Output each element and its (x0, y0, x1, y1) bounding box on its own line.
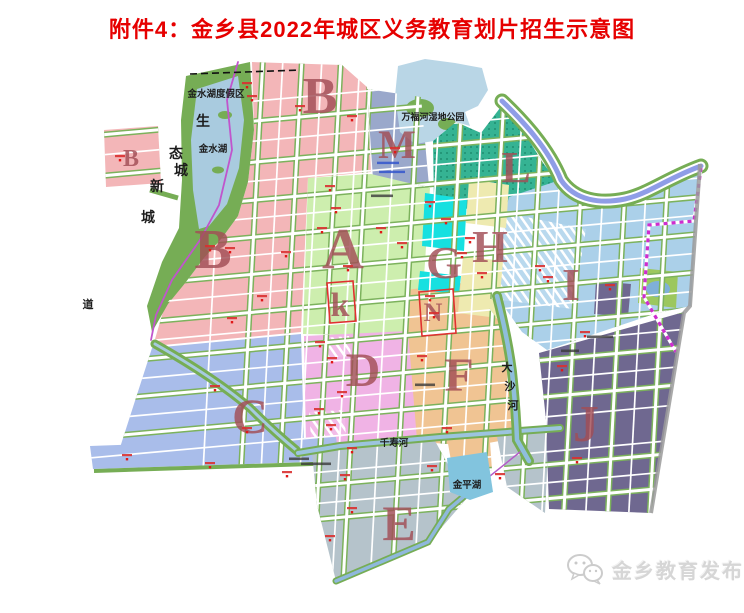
zone-letter-b-left: B (194, 219, 231, 281)
school-dot-mark (446, 431, 448, 433)
school-dot-mark (209, 249, 211, 251)
school-name-mark (441, 218, 451, 220)
school-name-mark (457, 252, 467, 254)
school-dot-mark (429, 299, 431, 301)
school-dot-mark (609, 288, 611, 290)
school-name-mark (257, 295, 267, 297)
school-dot-mark (331, 361, 333, 363)
school-dot-mark (126, 458, 128, 460)
school-dot-mark (431, 469, 433, 471)
school-dot-mark (335, 211, 337, 213)
school-dot-mark (401, 246, 403, 248)
school-dot-mark (547, 280, 549, 282)
school-dot-mark (347, 269, 349, 271)
school-dot-mark (318, 412, 320, 414)
school-dot-mark (321, 231, 323, 233)
school-dot-mark (344, 478, 346, 480)
school-dot-mark (351, 119, 353, 121)
school-dot-mark (261, 299, 263, 301)
school-dot-mark (584, 335, 586, 337)
school-name-mark (205, 245, 215, 247)
school-dot-mark (341, 395, 343, 397)
school-name-mark (205, 462, 215, 464)
school-dot-mark (329, 539, 331, 541)
zone-letter-e: E (382, 495, 415, 551)
school-name-mark (465, 237, 475, 239)
school-name-mark (247, 95, 257, 97)
label-dasha-1: 大 (502, 360, 513, 374)
school-name-mark (347, 507, 357, 509)
blue-label-mark (377, 162, 399, 164)
school-dot-mark (285, 255, 287, 257)
school-name-mark (242, 427, 252, 429)
zoning-map: B M L B B A H G k N I D F C J E 金水湖度假区 金… (0, 0, 744, 613)
school-name-mark (340, 474, 350, 476)
school-name-mark (495, 473, 505, 475)
school-name-mark (225, 247, 235, 249)
label-resort: 金水湖度假区 (186, 88, 245, 100)
school-name-mark (281, 251, 291, 253)
black-label-mark (289, 458, 309, 461)
zone-letter-k: k (331, 287, 350, 324)
islet (218, 111, 232, 119)
school-name-mark (314, 408, 324, 410)
school-dot-mark (461, 256, 463, 258)
school-name-mark (427, 465, 437, 467)
school-name-mark (325, 185, 335, 187)
black-label-mark (301, 463, 331, 466)
school-dot-mark (209, 466, 211, 468)
school-name-mark (326, 424, 336, 426)
black-label-mark (587, 336, 613, 339)
zone-letter-l: L (501, 143, 530, 192)
school-dot-mark (429, 205, 431, 207)
school-dot-mark (319, 345, 321, 347)
school-dot-mark (286, 475, 288, 477)
school-name-mark (477, 272, 487, 274)
zone-letter-h: H (472, 221, 508, 272)
label-river-qianshou: 千寿河 (380, 437, 409, 449)
school-name-mark (122, 454, 132, 456)
page: B M L B B A H G k N I D F C J E 金水湖度假区 金… (0, 0, 744, 613)
school-dot-mark (351, 451, 353, 453)
school-dot-mark (561, 369, 563, 371)
school-dot-mark (246, 431, 248, 433)
school-dot-mark (445, 222, 447, 224)
zone-letter-f: F (444, 349, 473, 402)
watermark: 金乡教育发布 (566, 552, 744, 586)
zone-letter-b-west: B (123, 146, 139, 172)
school-name-mark (282, 471, 292, 473)
label-wetland: 万福河湿地公园 (400, 111, 464, 122)
school-name-mark (442, 427, 452, 429)
school-dot-mark (214, 389, 216, 391)
label-newtown-1: 新 (150, 178, 164, 195)
school-name-mark (295, 105, 305, 107)
school-name-mark (315, 341, 325, 343)
school-name-mark (327, 357, 337, 359)
zone-letter-b-north: B (303, 68, 338, 125)
school-name-mark (390, 147, 400, 149)
zone-letter-d: D (346, 344, 381, 397)
label-eco-2: 态 (169, 145, 183, 162)
school-name-mark (605, 284, 615, 286)
school-dot-mark (481, 276, 483, 278)
school-dot-mark (229, 251, 231, 253)
school-name-mark (343, 265, 353, 267)
watermark-text: 金乡教育发布 (612, 555, 744, 584)
school-dot-mark (499, 477, 501, 479)
school-dot-mark (433, 316, 435, 318)
zone-letter-c: C (232, 388, 268, 444)
school-name-mark (242, 82, 252, 84)
school-name-mark (425, 295, 435, 297)
zone-letter-g: G (426, 237, 462, 288)
school-name-mark (376, 227, 386, 229)
school-name-mark (317, 227, 327, 229)
school-name-mark (397, 242, 407, 244)
school-name-mark (210, 385, 220, 387)
school-dot-mark (539, 269, 541, 271)
school-name-mark (543, 276, 553, 278)
school-dot-mark (421, 359, 423, 361)
black-label-mark (561, 350, 579, 353)
islet (212, 167, 224, 174)
school-name-mark (417, 355, 427, 357)
label-newtown-2: 城 (141, 209, 155, 226)
zone-letter-i: I (562, 259, 580, 310)
school-dot-mark (246, 86, 248, 88)
school-dot-mark (394, 151, 396, 153)
school-dot-mark (329, 189, 331, 191)
school-dot-mark (380, 231, 382, 233)
school-name-mark (331, 207, 341, 209)
school-dot-mark (231, 321, 233, 323)
school-name-mark (572, 457, 582, 459)
school-dot-mark (251, 99, 253, 101)
school-dot-mark (119, 159, 121, 161)
school-name-mark (535, 265, 545, 267)
school-name-mark (429, 312, 439, 314)
zone-letter-m: M (378, 122, 416, 167)
zone-letter-a: A (322, 216, 364, 281)
label-dasha-3: 河 (508, 398, 519, 412)
blue-label-mark (379, 171, 405, 173)
school-name-mark (115, 155, 125, 157)
school-name-mark (347, 447, 357, 449)
school-name-mark (347, 115, 357, 117)
school-dot-mark (469, 241, 471, 243)
school-name-mark (425, 201, 435, 203)
label-eco-3: 城 (174, 162, 188, 179)
label-dasha-2: 沙 (505, 380, 516, 393)
zone-letter-j: J (573, 396, 599, 453)
school-dot-mark (330, 428, 332, 430)
school-name-mark (227, 317, 237, 319)
school-dot-mark (576, 461, 578, 463)
label-lake-jinping: 金平湖 (452, 479, 482, 491)
page-title: 附件4：金乡县2022年城区义务教育划片招生示意图 (0, 12, 744, 44)
black-label-mark (415, 384, 435, 387)
label-dao: 道 (83, 297, 94, 311)
label-lake-jinshui: 金水湖 (198, 143, 228, 155)
school-dot-mark (299, 109, 301, 111)
label-eco-1: 生 (196, 113, 210, 130)
school-name-mark (325, 535, 335, 537)
school-name-mark (337, 391, 347, 393)
school-name-mark (580, 331, 590, 333)
black-label-mark (371, 195, 393, 198)
lake-jinping (447, 452, 493, 500)
school-name-mark (557, 365, 567, 367)
wechat-icon (566, 552, 604, 586)
school-dot-mark (351, 511, 353, 513)
